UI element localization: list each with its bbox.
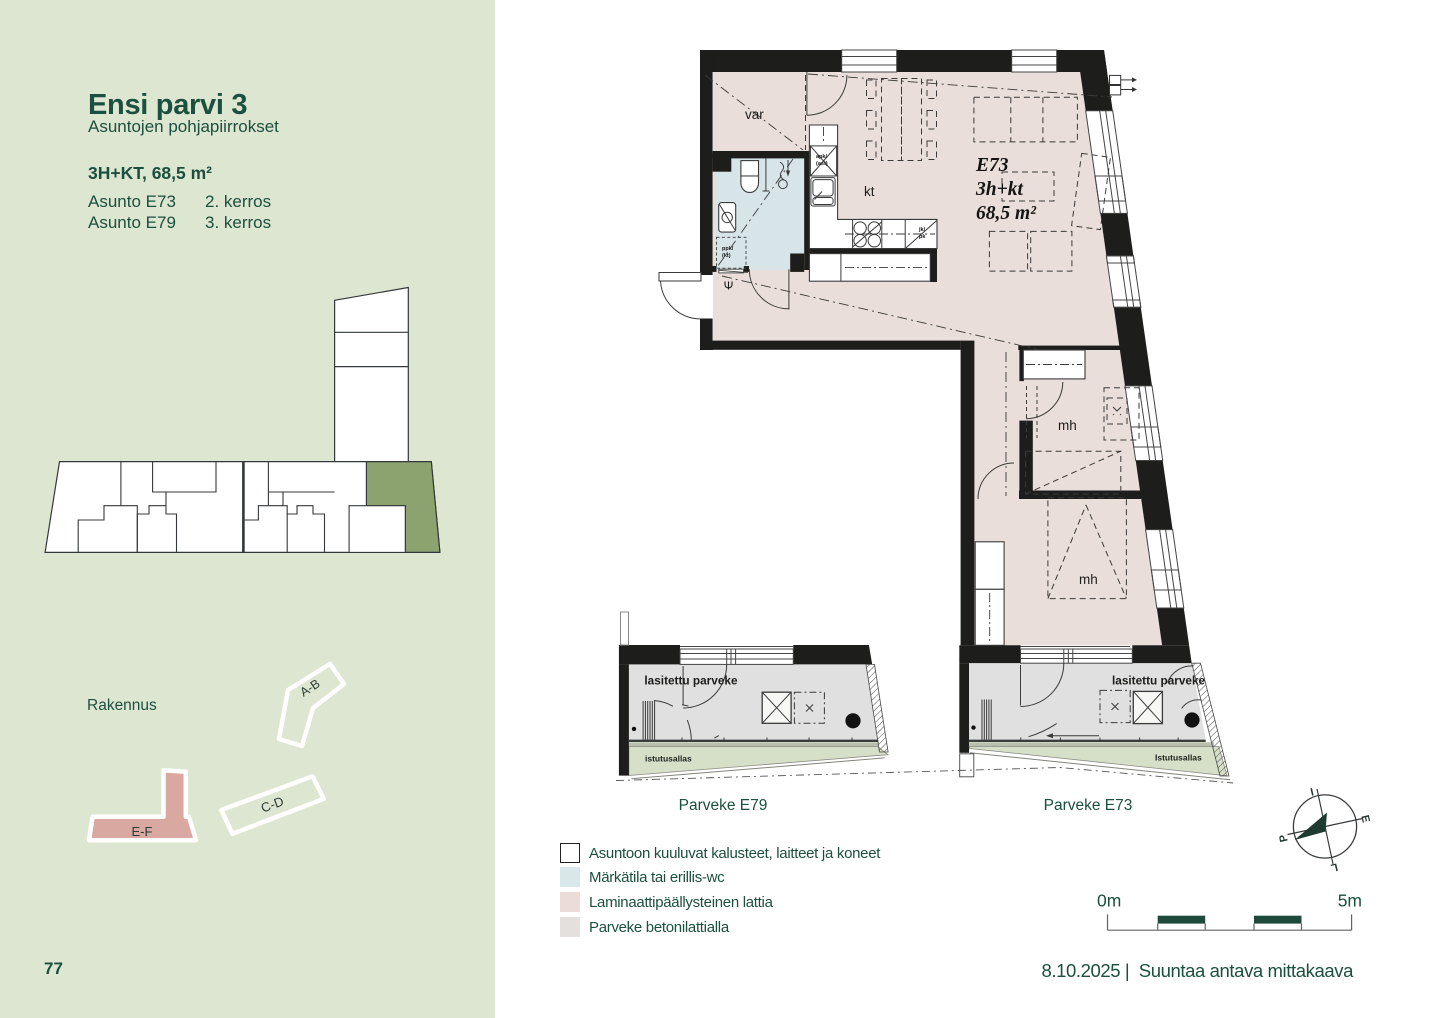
svg-text:istutusallas: istutusallas xyxy=(645,754,692,764)
svg-text:kt: kt xyxy=(864,184,875,199)
svg-text:I: I xyxy=(1309,786,1315,798)
svg-text:E: E xyxy=(1358,814,1371,824)
svg-text:lasitettu parveke: lasitettu parveke xyxy=(1112,674,1206,688)
svg-text:mh: mh xyxy=(1079,572,1098,587)
svg-text:E73: E73 xyxy=(975,155,1009,176)
svg-text:var: var xyxy=(745,107,764,122)
svg-text:3h+kt: 3h+kt xyxy=(975,179,1023,200)
svg-text:jk/: jk/ xyxy=(918,227,926,233)
svg-text:0m: 0m xyxy=(1097,891,1121,911)
svg-text:pk: pk xyxy=(919,234,926,240)
svg-text:5m: 5m xyxy=(1338,891,1362,911)
svg-text:Istutusallas: Istutusallas xyxy=(1155,753,1202,763)
svg-text:lasitettu parveke: lasitettu parveke xyxy=(644,674,738,688)
svg-text:ppk/: ppk/ xyxy=(722,246,734,252)
svg-text:68,5 m²: 68,5 m² xyxy=(976,203,1037,224)
svg-text:mh: mh xyxy=(1058,418,1077,433)
svg-text:(ast): (ast) xyxy=(816,161,828,167)
svg-text:E-F: E-F xyxy=(132,824,153,839)
svg-text:L: L xyxy=(1329,860,1339,873)
svg-text:apk/: apk/ xyxy=(816,154,827,160)
svg-text:P: P xyxy=(1277,833,1290,843)
